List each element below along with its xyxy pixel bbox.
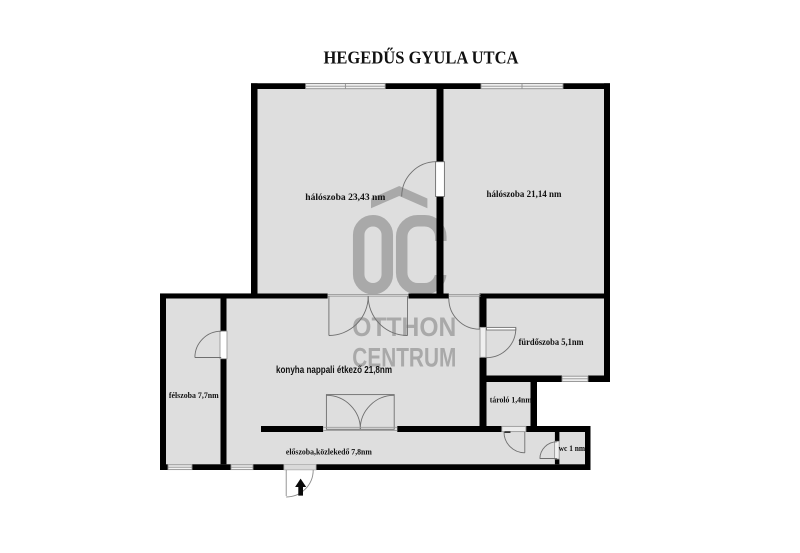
svg-text:fürdőszoba 5,1nm: fürdőszoba 5,1nm (519, 338, 584, 348)
svg-text:hálószoba 21,14 nm: hálószoba 21,14 nm (487, 190, 562, 200)
svg-text:tároló 1,4nm: tároló 1,4nm (490, 395, 532, 405)
svg-text:OTTHON: OTTHON (352, 312, 456, 342)
svg-text:konyha nappali étkező 21,8nm: konyha nappali étkező 21,8nm (276, 365, 392, 376)
svg-text:előszoba,közlekedő 7,8nm: előszoba,közlekedő 7,8nm (286, 446, 372, 456)
svg-text:wc 1 nm: wc 1 nm (559, 443, 586, 453)
svg-text:félszoba 7,7nm: félszoba 7,7nm (169, 390, 219, 400)
svg-text:HEGEDŰS GYULA UTCA: HEGEDŰS GYULA UTCA (324, 48, 519, 68)
svg-text:hálószoba 23,43 nm: hálószoba 23,43 nm (305, 193, 385, 203)
